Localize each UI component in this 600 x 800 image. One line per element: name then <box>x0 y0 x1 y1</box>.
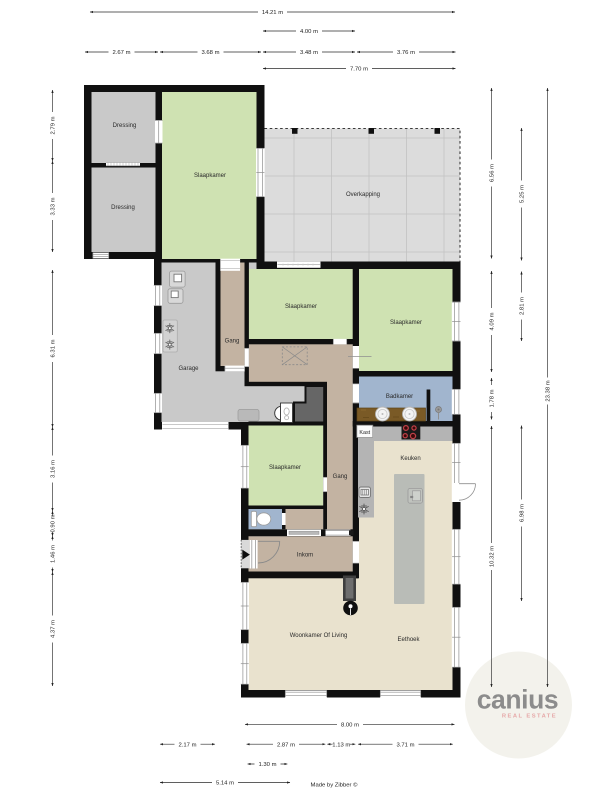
svg-text:1.78 m: 1.78 m <box>490 389 496 407</box>
svg-text:2.81 m: 2.81 m <box>520 297 526 315</box>
svg-text:3.16 m: 3.16 m <box>51 460 57 478</box>
svg-text:0.90 m: 0.90 m <box>51 514 57 532</box>
svg-text:3.68 m: 3.68 m <box>201 50 219 56</box>
svg-text:6.98 m: 6.98 m <box>520 504 526 522</box>
svg-text:5.25 m: 5.25 m <box>520 185 526 203</box>
svg-text:2.79 m: 2.79 m <box>51 116 57 134</box>
svg-text:2.17 m: 2.17 m <box>178 742 196 748</box>
svg-text:3.48 m: 3.48 m <box>300 50 318 56</box>
svg-text:5.14 m: 5.14 m <box>216 781 234 787</box>
svg-text:Woonkamer Of Living: Woonkamer Of Living <box>290 633 348 639</box>
svg-text:3.71 m: 3.71 m <box>396 742 414 748</box>
svg-text:1.30 m: 1.30 m <box>258 762 276 768</box>
svg-text:Eethoek: Eethoek <box>397 637 420 643</box>
svg-text:Made by Zibber ©: Made by Zibber © <box>311 782 359 789</box>
svg-text:REAL ESTATE: REAL ESTATE <box>502 714 557 720</box>
svg-text:23.38 m: 23.38 m <box>546 380 552 401</box>
svg-text:6.56 m: 6.56 m <box>490 164 496 182</box>
svg-text:Overkapping: Overkapping <box>346 192 380 198</box>
svg-text:Garage: Garage <box>178 366 199 372</box>
svg-text:Slaapkamer: Slaapkamer <box>390 320 422 326</box>
svg-text:8.00 m: 8.00 m <box>341 723 359 729</box>
svg-text:4.09 m: 4.09 m <box>490 312 496 330</box>
svg-text:10.32 m: 10.32 m <box>490 546 496 567</box>
svg-text:4.37 m: 4.37 m <box>51 620 57 638</box>
svg-text:Slaapkamer: Slaapkamer <box>269 465 301 471</box>
svg-text:3.33 m: 3.33 m <box>51 197 57 215</box>
svg-text:Dressing: Dressing <box>113 123 137 129</box>
svg-text:2.67 m: 2.67 m <box>112 50 130 56</box>
svg-text:Badkamer: Badkamer <box>386 394 413 400</box>
svg-text:Inkom: Inkom <box>297 553 313 559</box>
svg-text:Gang: Gang <box>333 474 348 480</box>
svg-text:14.21 m: 14.21 m <box>262 10 283 16</box>
svg-text:1.46 m: 1.46 m <box>51 545 57 563</box>
svg-text:1.13 m: 1.13 m <box>332 742 350 748</box>
svg-text:Slaapkamer: Slaapkamer <box>285 304 317 310</box>
svg-text:2.87 m: 2.87 m <box>277 742 295 748</box>
svg-text:3.76 m: 3.76 m <box>397 50 415 56</box>
svg-text:6.31 m: 6.31 m <box>51 339 57 357</box>
svg-text:7.70 m: 7.70 m <box>350 67 368 73</box>
svg-text:Kast: Kast <box>359 430 370 436</box>
svg-text:4.00 m: 4.00 m <box>300 29 318 35</box>
svg-text:Keuken: Keuken <box>400 456 420 462</box>
svg-text:Slaapkamer: Slaapkamer <box>194 173 226 179</box>
svg-text:Gang: Gang <box>225 339 240 345</box>
svg-text:canius: canius <box>477 685 559 715</box>
svg-text:Dressing: Dressing <box>111 205 135 211</box>
